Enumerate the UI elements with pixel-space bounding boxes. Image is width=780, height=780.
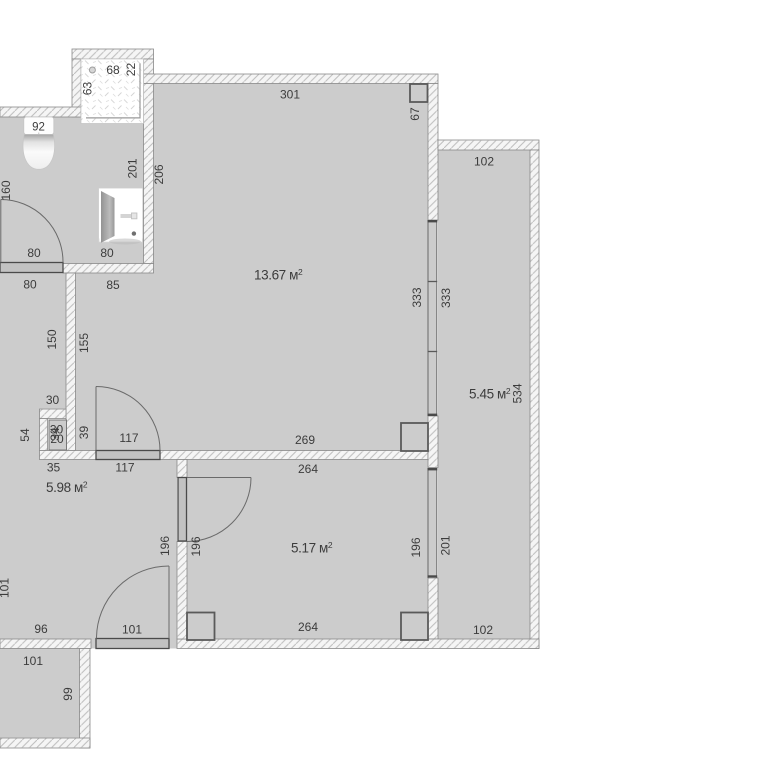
svg-text:333: 333 bbox=[439, 288, 453, 308]
svg-text:99: 99 bbox=[61, 687, 75, 701]
svg-text:68: 68 bbox=[106, 63, 120, 77]
svg-text:54: 54 bbox=[18, 428, 32, 442]
svg-text:5.45 м2: 5.45 м2 bbox=[469, 386, 511, 402]
svg-text:22: 22 bbox=[124, 63, 138, 77]
svg-text:301: 301 bbox=[280, 88, 300, 102]
svg-text:150: 150 bbox=[45, 329, 59, 349]
svg-text:5.98 м2: 5.98 м2 bbox=[46, 480, 88, 496]
svg-text:5.17 м2: 5.17 м2 bbox=[291, 540, 333, 556]
svg-text:13.67 м2: 13.67 м2 bbox=[254, 267, 303, 283]
svg-text:92: 92 bbox=[32, 122, 45, 134]
svg-text:160: 160 bbox=[0, 180, 13, 200]
svg-text:20: 20 bbox=[50, 432, 64, 446]
svg-text:333: 333 bbox=[410, 287, 424, 307]
svg-text:196: 196 bbox=[158, 536, 172, 556]
svg-text:30: 30 bbox=[46, 393, 60, 407]
svg-text:196: 196 bbox=[189, 536, 203, 556]
svg-text:269: 269 bbox=[295, 433, 315, 447]
svg-text:101: 101 bbox=[23, 654, 43, 668]
svg-text:85: 85 bbox=[106, 278, 120, 292]
svg-text:196: 196 bbox=[409, 537, 423, 557]
svg-text:201: 201 bbox=[439, 535, 453, 555]
svg-text:80: 80 bbox=[27, 246, 41, 260]
svg-text:201: 201 bbox=[126, 158, 140, 178]
svg-text:102: 102 bbox=[473, 623, 493, 637]
svg-text:117: 117 bbox=[115, 461, 134, 475]
svg-text:35: 35 bbox=[47, 461, 61, 475]
svg-text:102: 102 bbox=[474, 155, 494, 169]
svg-text:206: 206 bbox=[152, 164, 166, 184]
svg-text:264: 264 bbox=[298, 620, 318, 634]
svg-text:96: 96 bbox=[34, 622, 48, 636]
svg-text:101: 101 bbox=[0, 578, 12, 598]
svg-text:39: 39 bbox=[77, 426, 91, 440]
svg-text:264: 264 bbox=[298, 462, 318, 476]
svg-text:155: 155 bbox=[77, 333, 91, 353]
svg-text:117: 117 bbox=[119, 431, 138, 445]
svg-text:63: 63 bbox=[81, 82, 95, 96]
svg-text:80: 80 bbox=[23, 278, 37, 292]
svg-text:534: 534 bbox=[511, 383, 525, 403]
svg-text:101: 101 bbox=[122, 623, 142, 637]
svg-text:67: 67 bbox=[408, 107, 422, 121]
svg-text:80: 80 bbox=[100, 246, 114, 260]
